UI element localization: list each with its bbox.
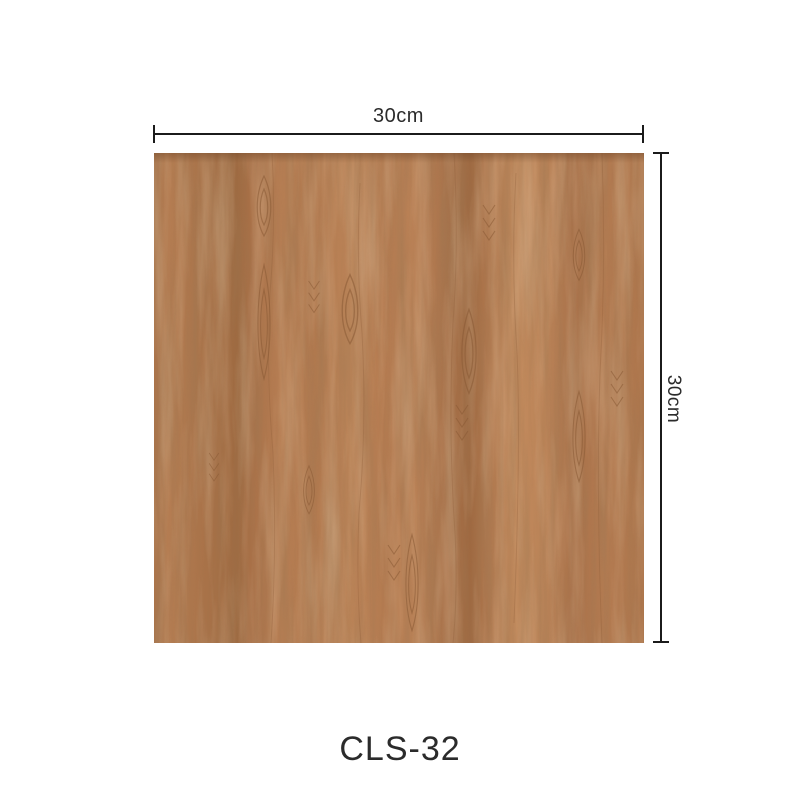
- width-dimension-label: 30cm: [154, 103, 643, 129]
- wood-texture-image: [154, 153, 644, 643]
- wood-texture-swatch: [154, 153, 644, 643]
- width-dimension-right-tick: [642, 125, 644, 143]
- width-dimension-left-tick: [153, 125, 155, 143]
- width-dimension-line: [154, 133, 643, 135]
- height-dimension-label: 30cm: [662, 375, 684, 423]
- height-dimension-top-tick: [653, 152, 669, 154]
- height-dimension-bottom-tick: [653, 641, 669, 643]
- product-model-label: CLS-32: [0, 729, 800, 769]
- product-image-canvas: 30cm: [0, 0, 800, 800]
